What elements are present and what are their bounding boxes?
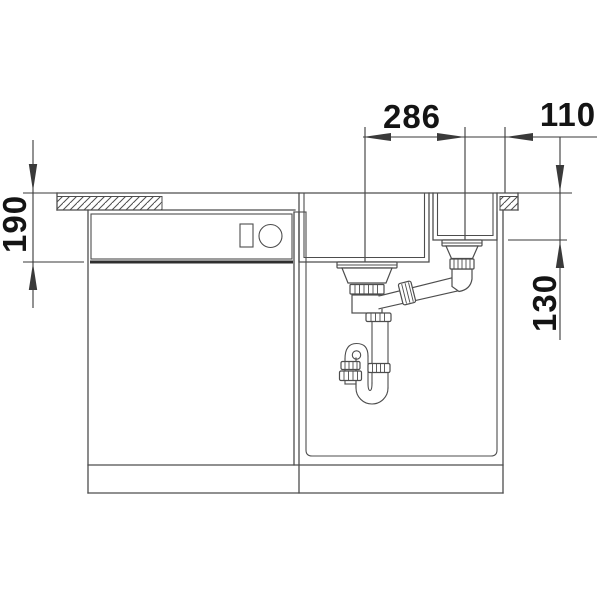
control-knob-icon: [259, 225, 282, 248]
arrow-up-icon: [29, 263, 37, 290]
secondary-strainer: [442, 240, 482, 269]
countertop-hatch-right: [500, 197, 518, 211]
trap-coupling-top: [366, 313, 391, 322]
dimension-label-bowl-depth: 130: [526, 274, 563, 332]
dishwasher-cabinet: [90, 214, 293, 262]
siphon-outlet-hook: [340, 344, 369, 389]
arrow-right-icon: [437, 133, 465, 141]
dimension-labels: 286 110 190 130: [0, 96, 596, 332]
trap-coupling-mid: [368, 364, 390, 373]
countertop-hatch-left: [57, 197, 162, 211]
extension-lines: [23, 127, 572, 262]
dishwasher-control-panel: [91, 214, 292, 259]
dimension-label-bowl-spacing: 286: [383, 98, 441, 135]
technical-drawing: 286 110 190 130: [0, 0, 600, 600]
main-bowl: [299, 193, 429, 262]
drain-plumbing: [337, 240, 482, 404]
countertop: [57, 193, 518, 210]
arrow-depth-top-icon: [556, 165, 564, 192]
arrow-offset-icon: [505, 133, 533, 141]
main-bowl-inner: [304, 193, 425, 258]
arrow-depth-bottom-icon: [556, 241, 564, 268]
main-drain-elbow: [352, 295, 382, 313]
dimension-lines: [29, 133, 597, 340]
dimension-label-front-height: 190: [0, 195, 33, 253]
secondary-drain-elbow: [452, 269, 472, 292]
main-strainer: [337, 262, 397, 294]
control-display-icon: [240, 224, 253, 247]
arrow-down-icon: [29, 164, 37, 191]
dimension-label-right-offset: 110: [540, 96, 596, 133]
cabinet-carcass: [88, 210, 503, 493]
